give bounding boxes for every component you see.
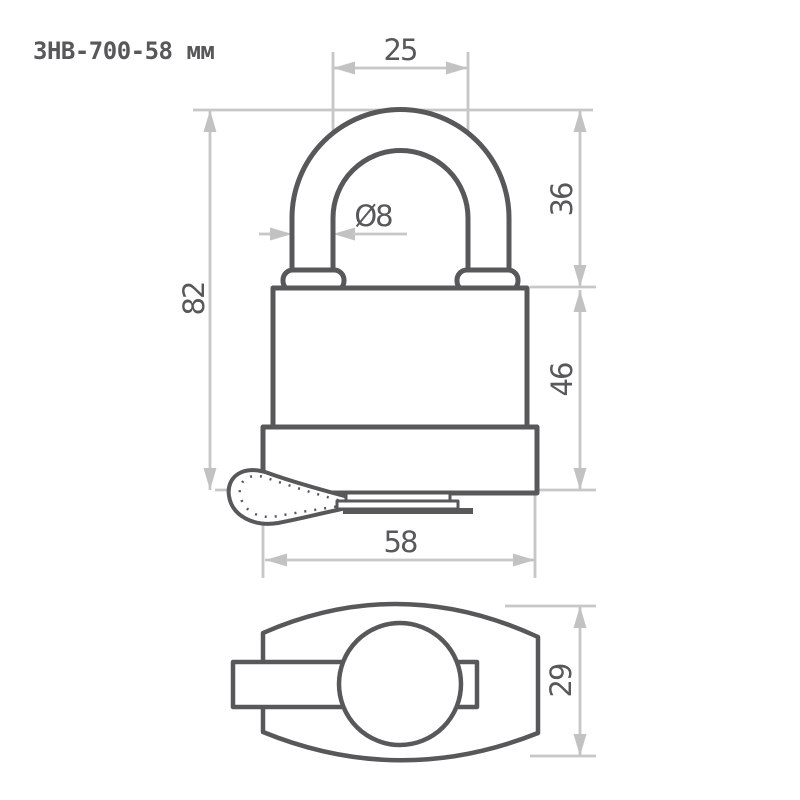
arrow-down-icon <box>574 265 587 287</box>
dim-body-height: 46 <box>545 290 587 490</box>
drawing-title: ЗНВ-700-58 мм <box>33 37 214 65</box>
dim-body-depth: 29 <box>544 606 587 756</box>
dim-label-82: 82 <box>177 283 211 316</box>
arrow-down-icon <box>204 468 217 490</box>
arrow-up-icon <box>574 110 587 132</box>
bottom-cover-disc <box>339 623 461 745</box>
dim-body-width: 58 <box>265 525 535 567</box>
keyhole-cover-bar <box>343 508 473 514</box>
dim-overall-height: 82 <box>177 110 217 490</box>
front-view <box>229 109 537 523</box>
technical-drawing-padlock: 25 82 36 46 58 <box>0 0 800 800</box>
arrow-right-icon <box>446 62 468 75</box>
dim-label-36: 36 <box>545 183 579 216</box>
arrow-right-icon <box>513 554 535 567</box>
dim-label-46: 46 <box>545 363 579 396</box>
drawing-svg: 25 82 36 46 58 <box>0 0 800 800</box>
dim-shackle-inner-width: 25 <box>333 33 468 75</box>
dim-label-diameter-8: Ø8 <box>354 199 392 233</box>
arrow-up-icon <box>574 290 587 312</box>
dim-label-25: 25 <box>384 33 417 67</box>
dim-shackle-height: 36 <box>545 110 587 287</box>
arrow-down-icon <box>574 468 587 490</box>
padlock-body-upper <box>273 288 527 427</box>
bottom-view <box>233 604 538 760</box>
arrow-left-icon <box>333 62 355 75</box>
padlock-shackle <box>292 109 509 274</box>
dim-label-58: 58 <box>384 525 417 559</box>
dim-label-29: 29 <box>544 664 578 697</box>
arrow-right-icon <box>270 228 292 241</box>
arrow-left-icon <box>265 554 287 567</box>
keyhole-cover-plate <box>337 501 458 509</box>
arrow-up-icon <box>574 606 587 628</box>
arrow-up-icon <box>204 110 217 132</box>
arrow-down-icon <box>574 734 587 756</box>
arrow-left-icon <box>333 228 355 241</box>
